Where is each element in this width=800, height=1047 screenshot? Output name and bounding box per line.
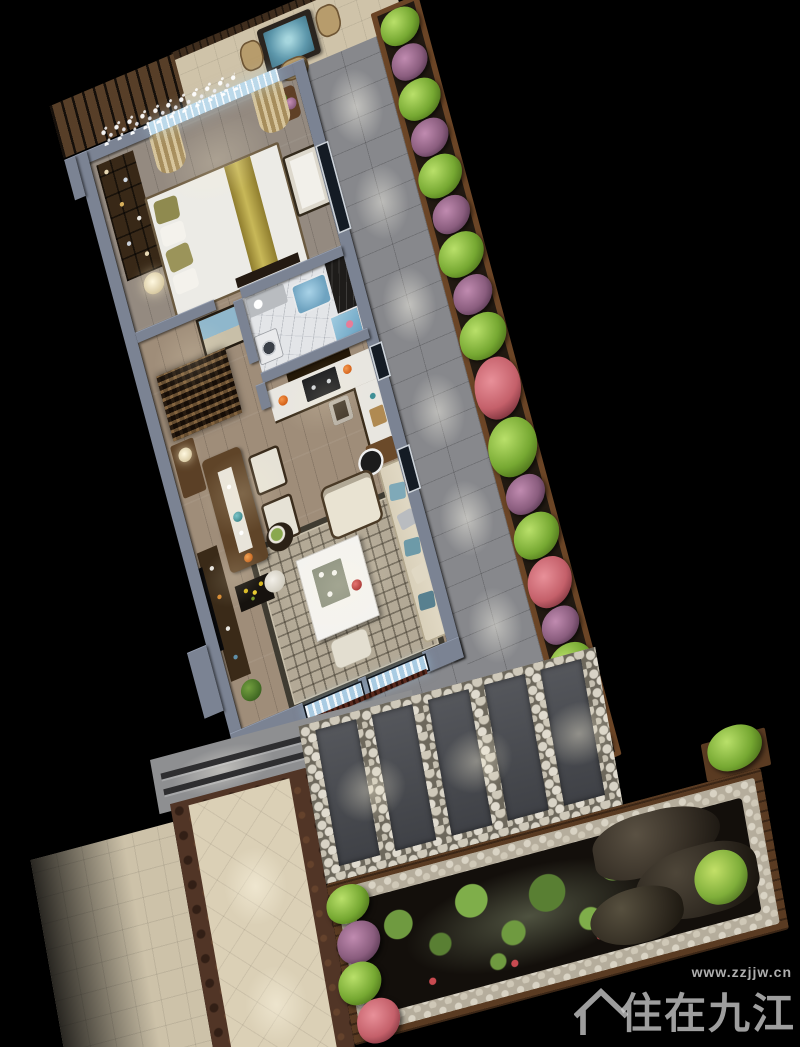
watermark-brand-text: 住在九江	[620, 980, 796, 1041]
watermark-logo-row: 住在九江	[574, 980, 796, 1041]
watermark: www.zzjjw.cn 住在九江	[574, 964, 796, 1041]
sofa-pillow	[389, 481, 406, 501]
floorplan-render-canvas: www.zzjjw.cn 住在九江	[0, 0, 800, 1047]
house-icon	[574, 987, 628, 1035]
watermark-url: www.zzjjw.cn	[574, 964, 792, 980]
